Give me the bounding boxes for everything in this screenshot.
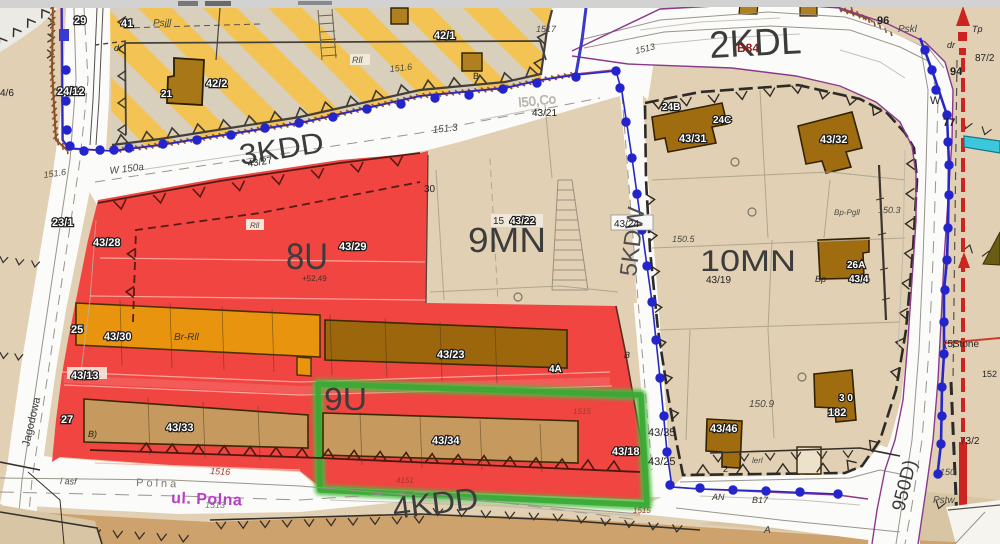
- svg-text:A: A: [763, 525, 771, 536]
- svg-text:77: 77: [943, 117, 955, 129]
- svg-text:25: 25: [71, 324, 83, 336]
- svg-text:150.3: 150.3: [878, 205, 901, 215]
- svg-text:43/25: 43/25: [648, 456, 676, 468]
- svg-text:43/22: 43/22: [510, 216, 535, 227]
- svg-text:43/29: 43/29: [339, 241, 367, 253]
- svg-text:(5Stone: (5Stone: [944, 339, 979, 350]
- svg-text:24/12: 24/12: [57, 86, 85, 98]
- svg-text:43/33: 43/33: [166, 422, 194, 434]
- svg-text:1517: 1517: [536, 24, 557, 34]
- svg-text:B: B: [473, 71, 479, 81]
- svg-text:73/2: 73/2: [960, 436, 980, 447]
- svg-text:24B: 24B: [662, 102, 680, 113]
- svg-text:43/24: 43/24: [614, 219, 639, 230]
- svg-text:96: 96: [877, 15, 889, 27]
- svg-text:43/23: 43/23: [437, 349, 465, 361]
- svg-text:150.5: 150.5: [672, 234, 696, 244]
- svg-text:1516: 1516: [210, 466, 231, 477]
- svg-text:Tp: Tp: [972, 24, 983, 34]
- svg-text:27: 27: [61, 414, 73, 426]
- svg-text:43/4: 43/4: [849, 274, 869, 285]
- svg-text:Pskl: Pskl: [898, 24, 918, 35]
- svg-text:43/32: 43/32: [820, 134, 848, 146]
- svg-text:150,: 150,: [940, 467, 958, 477]
- svg-text:1515: 1515: [573, 407, 591, 416]
- svg-text:43/35: 43/35: [648, 427, 676, 439]
- svg-text:Bp-Pgll: Bp-Pgll: [834, 208, 860, 217]
- svg-text:i asf: i asf: [60, 476, 78, 487]
- svg-text:42/2: 42/2: [206, 78, 227, 90]
- svg-text:8U: 8U: [286, 236, 328, 277]
- svg-text:+52,49: +52,49: [302, 274, 327, 283]
- svg-text:43/19: 43/19: [706, 275, 731, 286]
- svg-text:dr: dr: [947, 40, 956, 50]
- svg-text:182: 182: [828, 407, 846, 419]
- svg-text:dr: dr: [114, 43, 123, 53]
- svg-text:24C: 24C: [713, 115, 731, 126]
- svg-text:43/13: 43/13: [71, 370, 99, 382]
- svg-text:41: 41: [121, 18, 133, 30]
- svg-text:26A: 26A: [847, 260, 865, 271]
- svg-text:W: W: [930, 95, 941, 107]
- svg-text:43/30: 43/30: [104, 331, 132, 343]
- svg-text:AN: AN: [711, 492, 725, 502]
- svg-text:87/2: 87/2: [975, 53, 995, 64]
- svg-text:Pstw: Pstw: [933, 495, 955, 506]
- svg-text:4/6: 4/6: [0, 88, 14, 99]
- svg-text:B: B: [624, 350, 630, 360]
- svg-text:43/34: 43/34: [432, 435, 460, 447]
- svg-text:23/1: 23/1: [52, 217, 73, 229]
- svg-text:Bp: Bp: [815, 274, 826, 284]
- svg-text:Psill: Psill: [153, 18, 172, 29]
- svg-text:B17: B17: [752, 495, 769, 505]
- svg-text:42/1: 42/1: [434, 30, 455, 42]
- svg-text:Rll: Rll: [352, 55, 363, 65]
- svg-text:Br-Rll: Br-Rll: [174, 332, 200, 343]
- svg-text:lerl: lerl: [752, 456, 763, 465]
- svg-text:15: 15: [493, 216, 505, 227]
- svg-text:2: 2: [723, 464, 728, 474]
- svg-text:43/46: 43/46: [710, 423, 738, 435]
- svg-text:Polna: Polna: [136, 477, 180, 490]
- svg-text:10MN: 10MN: [700, 245, 796, 278]
- svg-text:150.9: 150.9: [749, 399, 774, 410]
- svg-text:4151: 4151: [396, 476, 414, 485]
- svg-text:Rll: Rll: [250, 221, 260, 230]
- svg-text:43/18: 43/18: [612, 446, 640, 458]
- svg-text:9U: 9U: [324, 381, 367, 417]
- svg-text:1515: 1515: [633, 506, 651, 515]
- svg-text:1513: 1513: [205, 500, 225, 510]
- svg-text:94: 94: [950, 66, 963, 78]
- svg-text:152: 152: [982, 369, 997, 379]
- svg-text:30: 30: [424, 184, 436, 195]
- svg-text:29: 29: [74, 15, 86, 27]
- svg-text:3 0: 3 0: [839, 393, 853, 404]
- svg-text:43/28: 43/28: [93, 237, 121, 249]
- svg-text:B): B): [88, 429, 97, 439]
- svg-text:43/21: 43/21: [532, 108, 557, 119]
- svg-text:21: 21: [161, 89, 173, 100]
- svg-text:B84: B84: [737, 41, 759, 55]
- svg-text:43/31: 43/31: [679, 133, 707, 145]
- svg-text:4A: 4A: [549, 364, 562, 375]
